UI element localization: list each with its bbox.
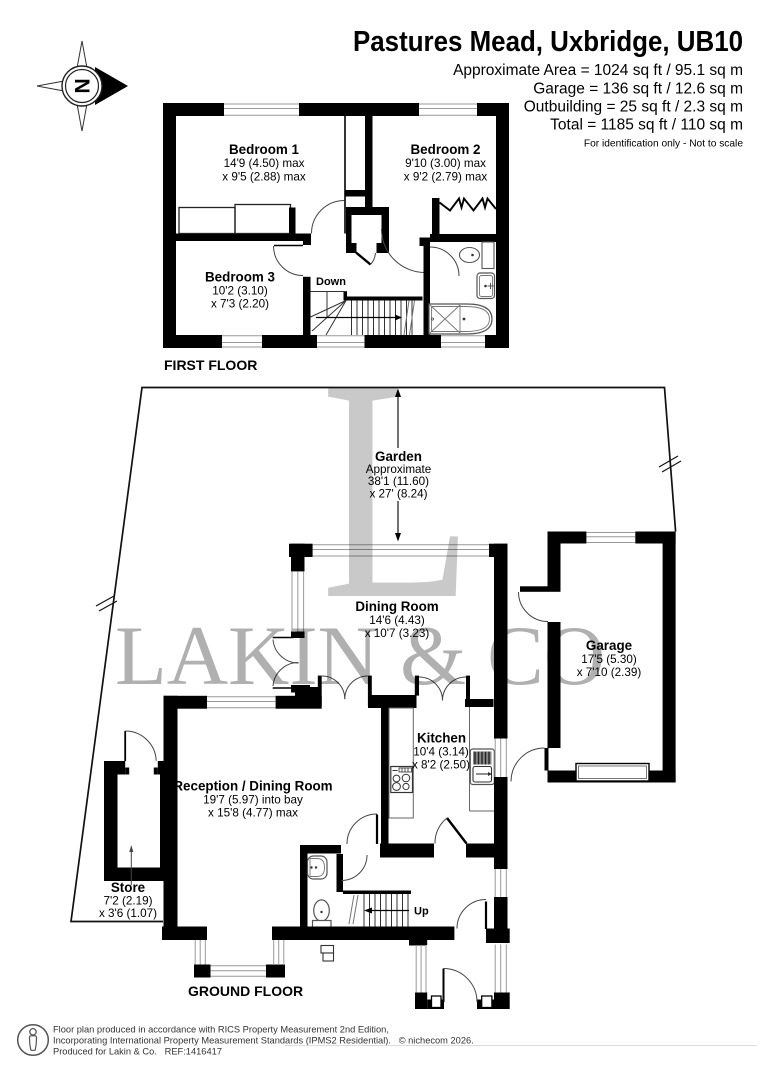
svg-text:Store: Store xyxy=(111,880,145,895)
svg-text:GROUND FLOOR: GROUND FLOOR xyxy=(188,983,303,999)
svg-text:Pastures Mead, Uxbridge, UB10: Pastures Mead, Uxbridge, UB10 xyxy=(353,26,743,58)
svg-text:19'7 (5.97) into bay: 19'7 (5.97) into bay xyxy=(203,794,303,807)
svg-text:x 3'6 (1.07): x 3'6 (1.07) xyxy=(99,907,157,920)
svg-text:Total = 1185 sq ft / 110 sq m: Total = 1185 sq ft / 110 sq m xyxy=(550,117,743,134)
svg-text:Outbuilding = 25 sq ft / 2.3 s: Outbuilding = 25 sq ft / 2.3 sq m xyxy=(524,99,743,116)
svg-text:10'4 (3.14): 10'4 (3.14) xyxy=(413,746,469,759)
svg-text:Incorporating International Pr: Incorporating International Property Mea… xyxy=(53,1036,474,1046)
svg-text:Up: Up xyxy=(414,906,429,918)
svg-text:Approximate Area = 1024 sq ft: Approximate Area = 1024 sq ft / 95.1 sq … xyxy=(453,62,743,79)
svg-text:N: N xyxy=(70,78,93,93)
svg-text:Garage = 136 sq ft / 12.6 sq m: Garage = 136 sq ft / 12.6 sq m xyxy=(533,81,743,98)
svg-text:Produced for Lakin & Co. REF: Produced for Lakin & Co. REF:1416417 xyxy=(53,1047,222,1057)
svg-text:x 7'3 (2.20): x 7'3 (2.20) xyxy=(211,298,269,311)
svg-text:FIRST FLOOR: FIRST FLOOR xyxy=(164,357,257,373)
svg-text:Bedroom 3: Bedroom 3 xyxy=(205,270,275,285)
svg-text:x 15'8 (4.77) max: x 15'8 (4.77) max xyxy=(208,807,298,820)
svg-text:Bedroom 1: Bedroom 1 xyxy=(229,142,299,157)
svg-text:For identification only - Not: For identification only - Not to scale xyxy=(584,139,743,150)
svg-text:LAKIN & CO: LAKIN & CO xyxy=(115,609,605,703)
svg-text:9'10 (3.00) max: 9'10 (3.00) max xyxy=(405,157,486,170)
svg-text:Bedroom 2: Bedroom 2 xyxy=(411,142,481,157)
svg-text:x 8'2 (2.50): x 8'2 (2.50) xyxy=(412,759,470,772)
svg-text:Reception / Dining Room: Reception / Dining Room xyxy=(173,779,332,794)
svg-text:Down: Down xyxy=(316,276,346,288)
svg-text:Floor plan produced in accorda: Floor plan produced in accordance with R… xyxy=(53,1025,389,1035)
svg-text:10'2 (3.10): 10'2 (3.10) xyxy=(212,285,268,298)
svg-text:x 9'5 (2.88) max: x 9'5 (2.88) max xyxy=(222,171,306,184)
svg-text:7'2 (2.19): 7'2 (2.19) xyxy=(103,895,152,908)
svg-text:Kitchen: Kitchen xyxy=(417,731,466,746)
svg-text:14'9 (4.50) max: 14'9 (4.50) max xyxy=(224,157,305,170)
svg-text:x 9'2 (2.79) max: x 9'2 (2.79) max xyxy=(404,171,488,184)
